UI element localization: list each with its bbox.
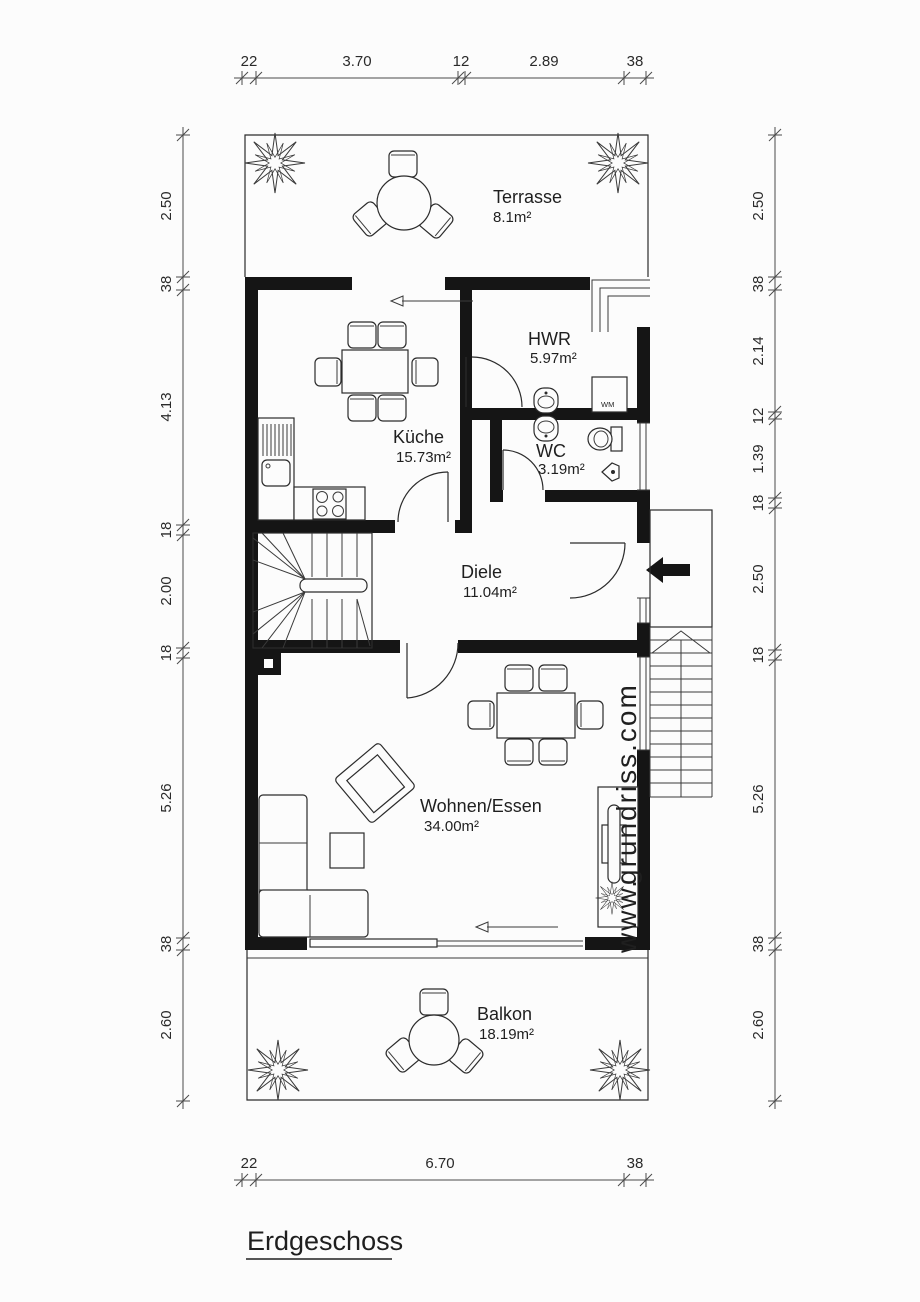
kitchen-door (398, 472, 448, 522)
svg-text:18: 18 (158, 645, 175, 662)
balcony-door-arrow (476, 922, 558, 932)
entrance-arrow (646, 557, 690, 583)
terrace-table (377, 176, 431, 230)
page-title: Erdgeschoss (247, 1226, 403, 1256)
armchair (334, 742, 416, 824)
washing-machine-label: WM (601, 400, 614, 409)
svg-text:2.60: 2.60 (750, 1010, 767, 1039)
floor-plan-page: WM (0, 0, 920, 1302)
side-table (330, 833, 364, 868)
basin-hwr (534, 388, 558, 413)
watermark: www. grundriss.com (611, 683, 642, 954)
room-label-hwr: HWR (528, 329, 571, 349)
kitchen-furniture (258, 322, 438, 520)
svg-text:22: 22 (241, 53, 258, 70)
room-label-wc: WC (536, 441, 566, 461)
svg-text:18: 18 (158, 522, 175, 539)
basin-wc (534, 416, 558, 441)
room-label-kueche: Küche (393, 427, 444, 447)
svg-text:38: 38 (627, 53, 644, 70)
plan-title: Erdgeschoss (246, 1226, 403, 1259)
room-area-diele: 11.04m² (463, 584, 517, 601)
room-label-terrasse: Terrasse (493, 187, 562, 207)
dining-table-set (468, 665, 603, 765)
room-area-terrasse: 8.1m² (493, 209, 531, 226)
svg-text:38: 38 (158, 936, 175, 953)
terrace-furniture (245, 133, 648, 240)
svg-text:2.60: 2.60 (158, 1010, 175, 1039)
balcony-furniture (248, 989, 650, 1100)
interior-staircase (253, 533, 372, 648)
room-area-wohnen: 34.00m² (424, 818, 479, 835)
toilet (588, 427, 622, 451)
svg-text:1.39: 1.39 (750, 444, 767, 473)
corner-glazing (592, 280, 650, 332)
watermark-rest: grundriss.com (611, 683, 642, 885)
svg-text:2.50: 2.50 (750, 564, 767, 593)
svg-text:18: 18 (750, 647, 767, 664)
room-area-kueche: 15.73m² (396, 449, 451, 466)
svg-text:3.70: 3.70 (342, 53, 371, 70)
watermark-prefix: www. (611, 878, 642, 954)
wc-window (637, 423, 650, 490)
kitchen-table-set (315, 322, 438, 421)
svg-text:12: 12 (453, 53, 470, 70)
svg-text:2.50: 2.50 (158, 191, 175, 220)
svg-text:38: 38 (750, 936, 767, 953)
svg-text:12: 12 (750, 408, 767, 425)
small-sink (602, 463, 619, 481)
dimension-left: 2.50 38 4.13 18 2.00 18 5.26 38 2.60 (158, 127, 190, 1109)
svg-text:2.00: 2.00 (158, 576, 175, 605)
svg-text:38: 38 (158, 276, 175, 293)
room-label-balkon: Balkon (477, 1004, 532, 1024)
svg-text:6.70: 6.70 (425, 1155, 454, 1172)
svg-text:4.13: 4.13 (158, 392, 175, 421)
room-labels: Terrasse 8.1m² HWR 5.97m² Küche 15.73m² … (393, 187, 585, 1043)
sliding-door (310, 939, 583, 947)
room-label-wohnen: Wohnen/Essen (420, 796, 542, 816)
svg-text:2.50: 2.50 (750, 191, 767, 220)
svg-text:5.26: 5.26 (750, 784, 767, 813)
room-area-wc: 3.19m² (538, 461, 585, 478)
room-area-balkon: 18.19m² (479, 1026, 534, 1043)
room-label-diele: Diele (461, 562, 502, 582)
dimension-bottom: 22 6.70 38 (234, 1155, 654, 1187)
hwr-door (466, 357, 522, 407)
front-door (570, 543, 625, 598)
entry-side-window (637, 598, 650, 623)
svg-text:18: 18 (750, 495, 767, 512)
svg-text:22: 22 (241, 1155, 258, 1172)
svg-text:38: 38 (750, 276, 767, 293)
svg-text:2.14: 2.14 (750, 336, 767, 365)
kitchen-sink (262, 460, 290, 486)
balcony-table (409, 1015, 459, 1065)
floor-plan-drawing: WM (0, 0, 920, 1302)
living-door (407, 643, 458, 698)
terrace-outline (245, 135, 648, 277)
svg-text:38: 38 (627, 1155, 644, 1172)
svg-text:5.26: 5.26 (158, 783, 175, 812)
dimension-top: 22 3.70 12 2.89 38 (234, 53, 654, 85)
room-area-hwr: 5.97m² (530, 350, 577, 367)
stove (313, 489, 346, 519)
svg-text:2.89: 2.89 (529, 53, 558, 70)
exterior-staircase (650, 510, 712, 797)
dimension-right: 2.50 38 2.14 12 1.39 18 2.50 18 5.26 38 … (750, 127, 782, 1109)
